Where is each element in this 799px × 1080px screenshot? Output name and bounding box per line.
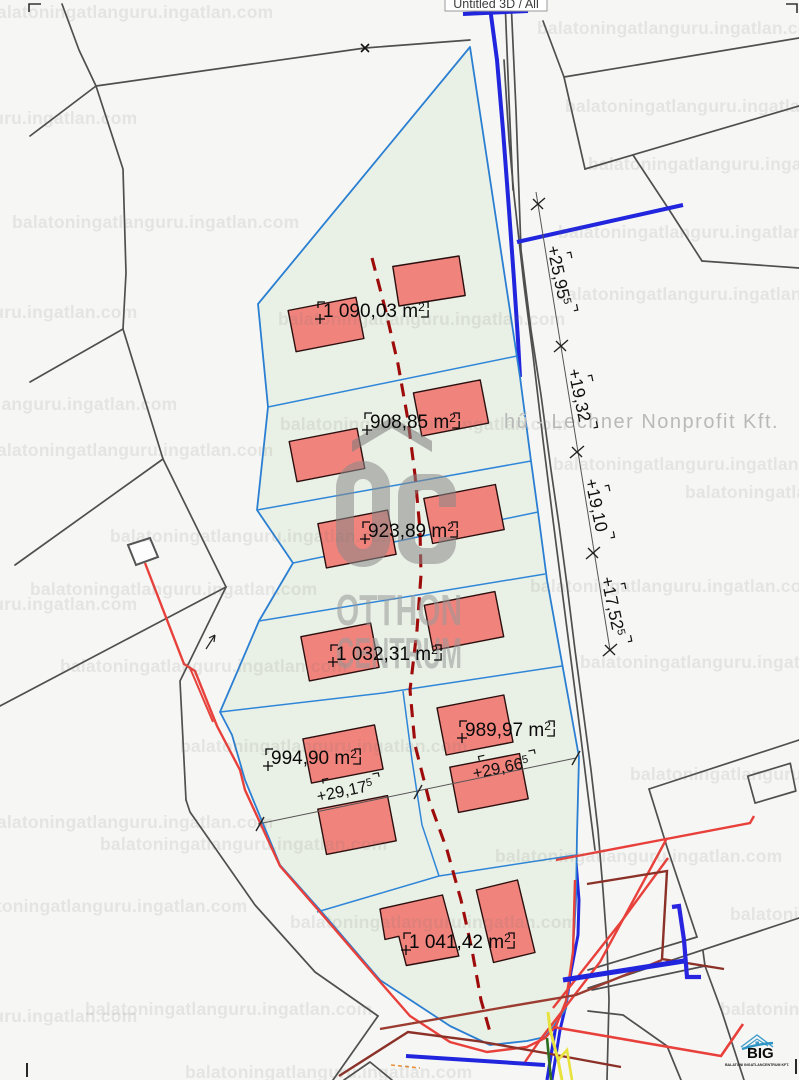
svg-text:balatoningatlanguru.ingatlan.c: balatoningatlanguru.ingatlan.com xyxy=(0,1006,137,1026)
svg-text:989,97 m2: 989,97 m2 xyxy=(465,719,551,741)
svg-text:BALATONI INGATLANCENTRUM KFT.: BALATONI INGATLANCENTRUM KFT. xyxy=(725,1063,789,1067)
svg-text:balatoningatlanguru.ingatlan.c: balatoningatlanguru.ingatlan.com xyxy=(556,284,799,304)
svg-text:balatoningatlanguru.ingatlan.c: balatoningatlanguru.ingatlan.com xyxy=(185,1062,472,1080)
svg-text:Untitled 3D / All: Untitled 3D / All xyxy=(453,0,538,11)
svg-text:balatoningatlanguru.ingatlan.c: balatoningatlanguru.ingatlan.com xyxy=(588,154,799,174)
svg-text:1 090,03 m2: 1 090,03 m2 xyxy=(323,300,425,322)
svg-text:1 041,42 m2: 1 041,42 m2 xyxy=(409,931,511,953)
svg-text:balatoningatlanguru.ingatlan.c: balatoningatlanguru.ingatlan.com xyxy=(537,18,799,38)
svg-text:994,90 m2: 994,90 m2 xyxy=(271,747,357,769)
svg-text:balatoningatlanguru.ingatlan.c: balatoningatlanguru.ingatlan.com xyxy=(553,454,799,474)
svg-text:923,89 m2: 923,89 m2 xyxy=(368,520,454,542)
svg-text:balatoningatlanguru.ingatlan.c: balatoningatlanguru.ingatlan.com xyxy=(0,108,137,128)
svg-text:BIG: BIG xyxy=(747,1045,774,1062)
svg-text:balatoningatlanguru.ingatlan.c: balatoningatlanguru.ingatlan.com xyxy=(495,846,782,866)
svg-text:balatoningatlanguru.ingatlan.c: balatoningatlanguru.ingatlan.com xyxy=(60,656,347,676)
svg-text:hű - Lechner Nonprofit Kft.: hű - Lechner Nonprofit Kft. xyxy=(504,411,779,433)
svg-text:balatoningatlanguru.ingatlan.c: balatoningatlanguru.ingatlan.com xyxy=(0,394,177,414)
svg-text:balatoningatlanguru.ingatlan.c: balatoningatlanguru.ingatlan.com xyxy=(558,222,799,242)
svg-text:balatoningatlanguru.ingatlan.c: balatoningatlanguru.ingatlan.com xyxy=(290,912,577,932)
svg-text:balatoningatlanguru.ingatlan.c: balatoningatlanguru.ingatlan.com xyxy=(30,579,317,599)
svg-text:balatoningatlanguru.ingatlan.c: balatoningatlanguru.ingatlan.com xyxy=(720,999,799,1019)
svg-text:balatoningatlanguru.ingatlan.c: balatoningatlanguru.ingatlan.com xyxy=(565,96,799,116)
svg-text:balatoningatlanguru.ingatlan.c: balatoningatlanguru.ingatlan.com xyxy=(0,440,273,460)
svg-text:balatoningatlanguru.ingatlan.c: balatoningatlanguru.ingatlan.com xyxy=(530,576,799,596)
svg-text:OTTHON: OTTHON xyxy=(336,586,462,635)
svg-text:balatoningatlanguru.ingatlan.c: balatoningatlanguru.ingatlan.com xyxy=(110,526,397,546)
svg-text:balatoningatlanguru.ingatlan.c: balatoningatlanguru.ingatlan.com xyxy=(730,904,799,924)
svg-text:balatoningatlanguru.ingatlan.c: balatoningatlanguru.ingatlan.com xyxy=(0,2,273,22)
svg-text:balatoningatlanguru.ingatlan.c: balatoningatlanguru.ingatlan.com xyxy=(580,652,799,672)
svg-text:balatoningatlanguru.ingatlan.c: balatoningatlanguru.ingatlan.com xyxy=(0,812,273,832)
svg-text:908,85 m2: 908,85 m2 xyxy=(370,411,456,433)
svg-text:balatoningatlanguru.ingatlan.c: balatoningatlanguru.ingatlan.com xyxy=(630,764,799,784)
svg-text:balatoningatlanguru.ingatlan.c: balatoningatlanguru.ingatlan.com xyxy=(0,896,247,916)
svg-text:1 032,31 m2: 1 032,31 m2 xyxy=(336,643,438,665)
svg-text:balatoningatlanguru.ingatlan.c: balatoningatlanguru.ingatlan.com xyxy=(0,302,137,322)
svg-text:balatoningatlanguru.ingatlan.c: balatoningatlanguru.ingatlan.com xyxy=(12,212,299,232)
svg-text:balatoningatlanguru.ingatlan.c: balatoningatlanguru.ingatlan.com xyxy=(685,482,799,502)
svg-text:balatoningatlanguru.ingatlan.c: balatoningatlanguru.ingatlan.com xyxy=(100,834,387,854)
